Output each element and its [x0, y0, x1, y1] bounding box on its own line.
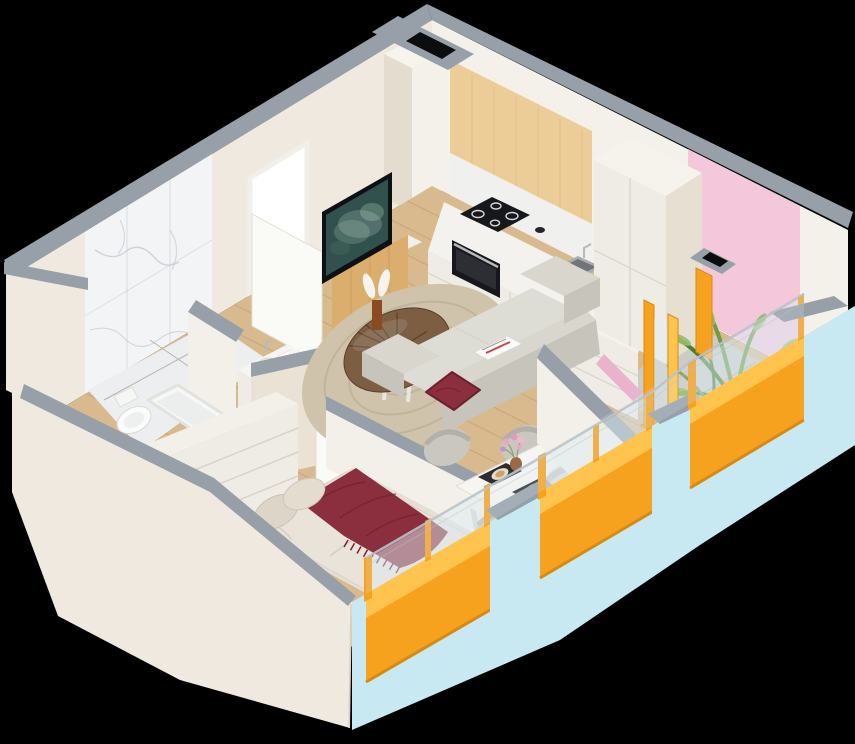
corner-column [384, 39, 442, 212]
floorplan-3d-render: A [0, 0, 855, 744]
